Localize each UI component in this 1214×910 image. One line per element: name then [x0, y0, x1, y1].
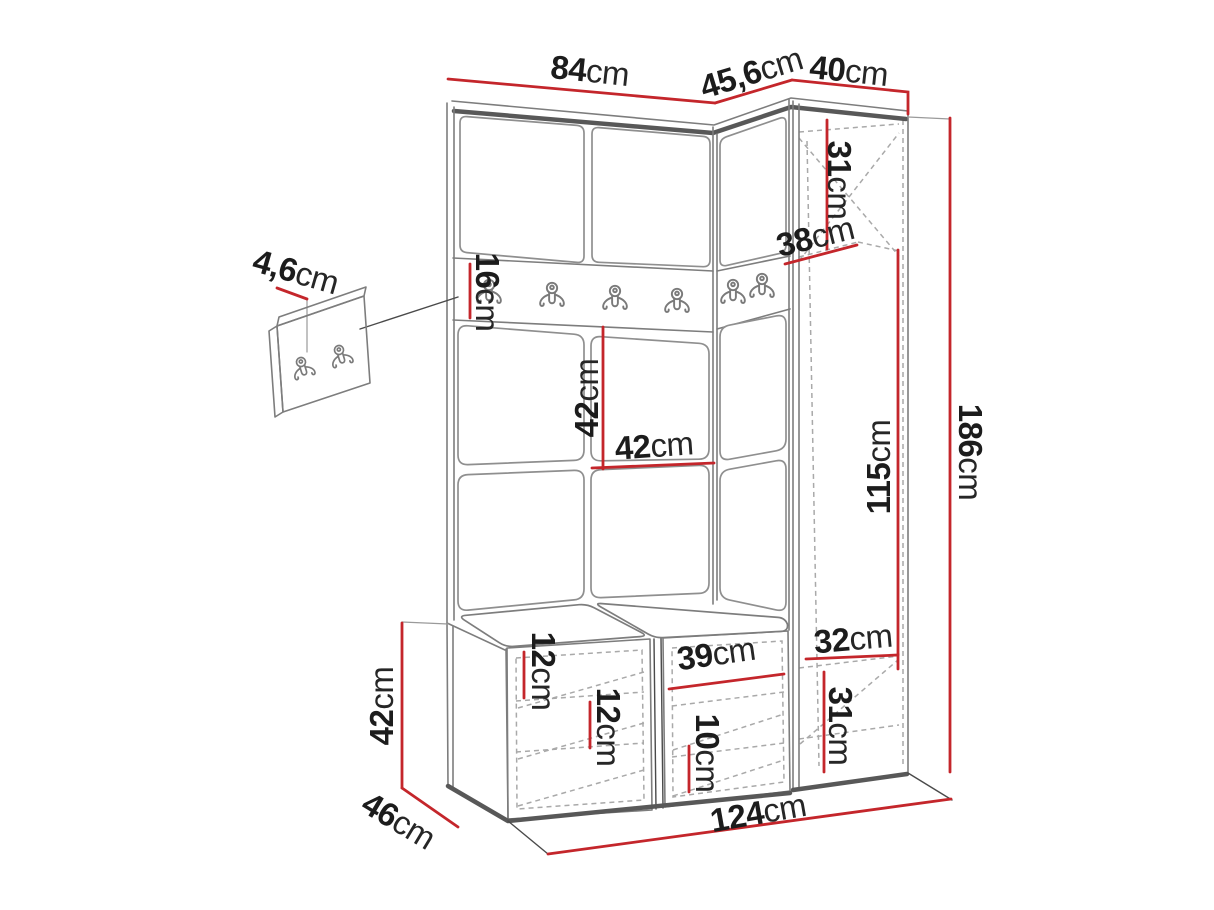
hook-rail [477, 274, 774, 312]
coat-hook-icon [328, 343, 354, 368]
dimension-label-32cm: 32cm [812, 616, 894, 660]
dimension-label-46cm: 46cm [356, 784, 443, 856]
dimension-label-31cm-top: 31cm [822, 141, 859, 220]
dimension-label-40cm: 40cm [808, 47, 890, 92]
coat-hook-icon [750, 274, 774, 297]
upholstered-panel [458, 326, 584, 465]
dimension-label-45-6cm: 45,6cm [695, 39, 806, 105]
dimension-label-4-6cm: 4,6cm [249, 241, 343, 301]
coat-hook-icon [603, 286, 627, 309]
dimension-label-10cm: 10cm [690, 714, 727, 793]
furniture-dimension-diagram: 84cm 45,6cm 40cm 31cm 38cm 16cm 4,6cm 42… [0, 0, 1214, 910]
dimension-label-115cm: 115cm [860, 420, 897, 515]
dimension-label-124cm: 124cm [707, 785, 809, 838]
cabinet-door [592, 128, 710, 267]
wall-hook-panel [269, 287, 370, 417]
dimension-label-12cm-b: 12cm [591, 688, 628, 767]
upholstered-panel [720, 316, 786, 460]
dimension-label-42cm-horizontal: 42cm [613, 424, 694, 466]
dimension-label-186cm: 186cm [953, 404, 990, 501]
coat-hook-icon [721, 280, 745, 303]
upholstered-panel [458, 470, 584, 610]
coat-hook-icon [290, 355, 316, 380]
coat-hook-icon [665, 289, 689, 312]
cabinet-door [460, 117, 584, 263]
wall-panel-pointer-line [360, 297, 458, 329]
dimension-label-12cm-a: 12cm [526, 632, 563, 711]
cabinet-doors [460, 117, 786, 267]
dimension-label-31cm-bottom: 31cm [823, 687, 860, 766]
dimension-line-39 [669, 674, 784, 689]
dimension-label-42cm-vertical: 42cm [568, 359, 605, 438]
upholstered-panel [591, 465, 709, 597]
drawing-canvas: 84cm 45,6cm 40cm 31cm 38cm 16cm 4,6cm 42… [0, 0, 1214, 910]
dimension-label-84cm: 84cm [549, 47, 631, 92]
dimension-label-42cm-bench: 42cm [363, 667, 400, 746]
coat-hook-icon [540, 283, 564, 306]
dimension-label-16cm: 16cm [470, 253, 507, 332]
upholstered-panel [720, 461, 786, 611]
